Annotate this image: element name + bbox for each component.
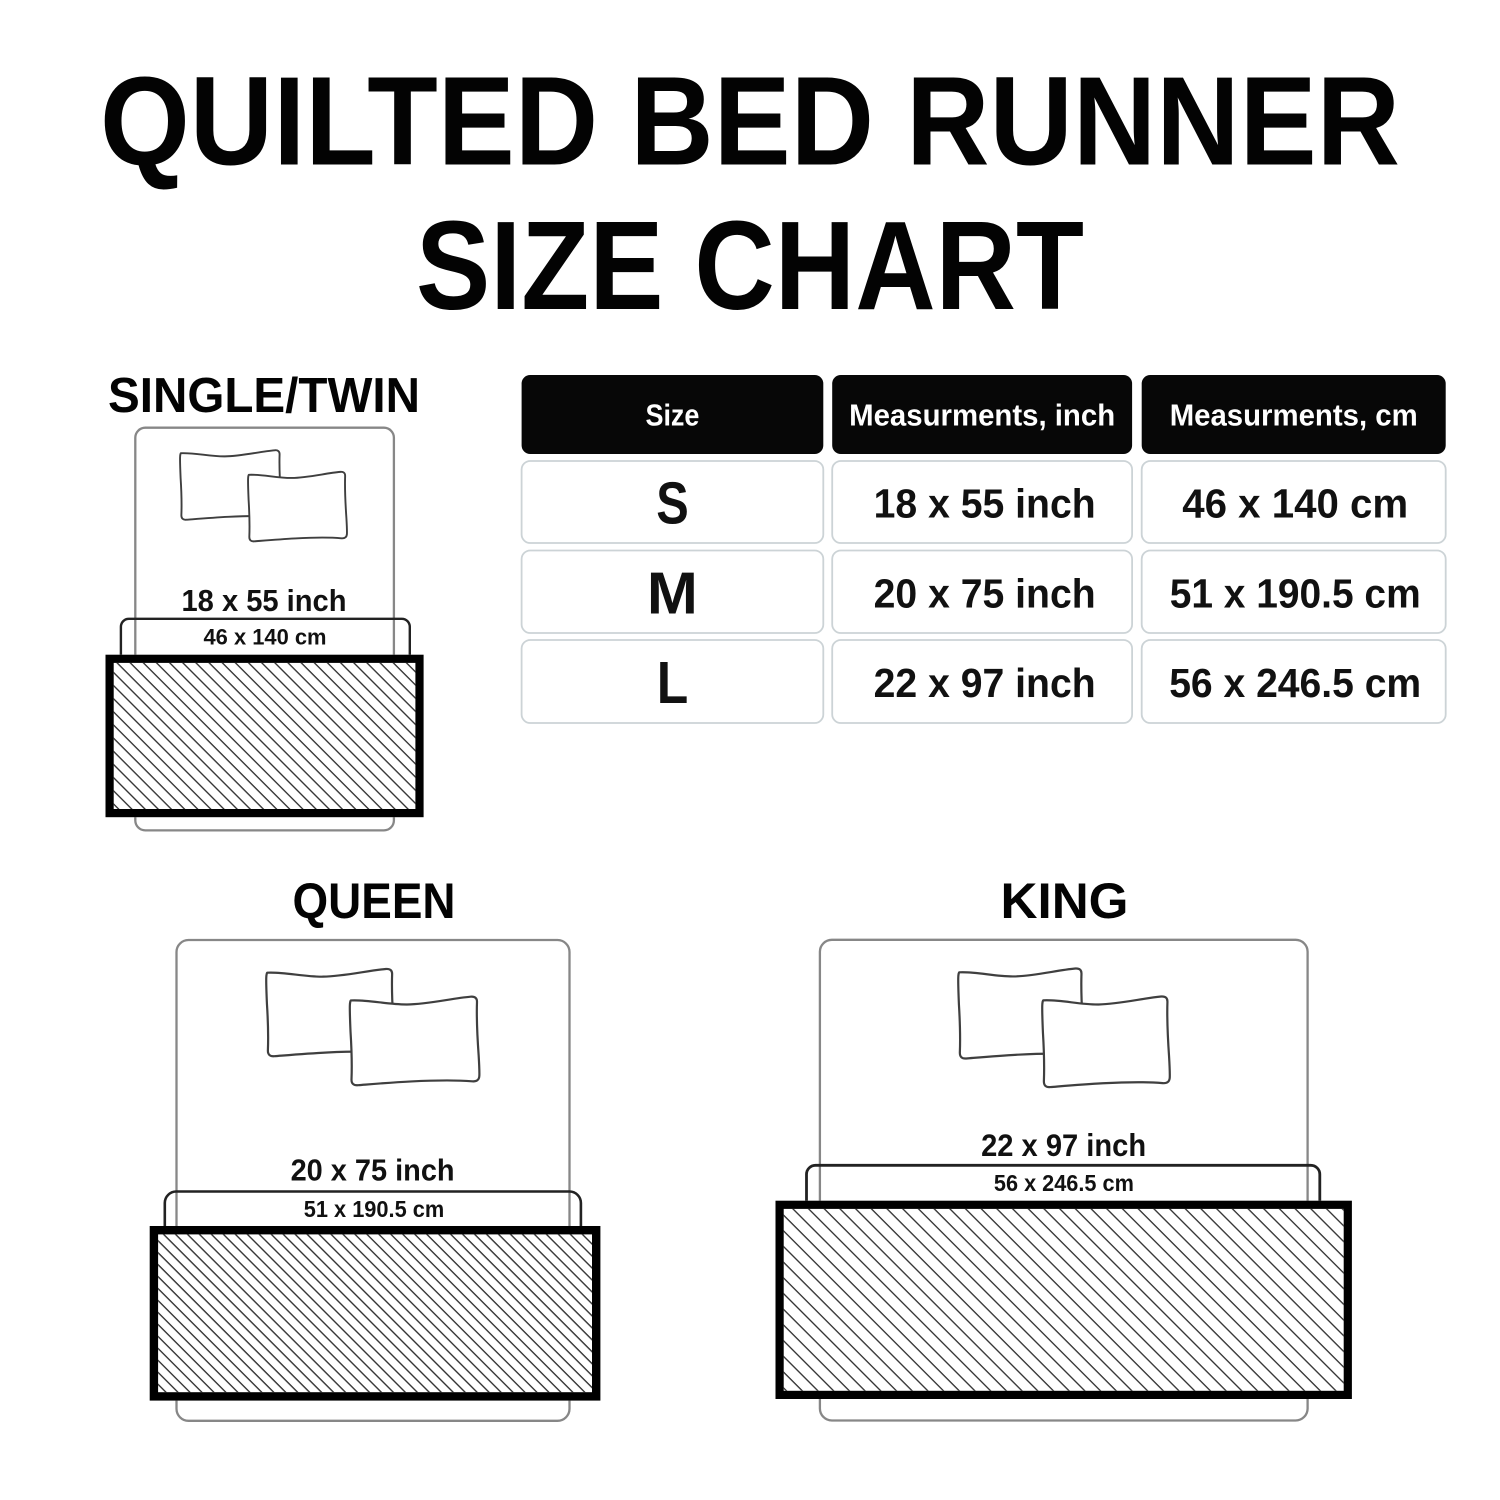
svg-text:51 x 190.5 cm: 51 x 190.5 cm xyxy=(304,1196,445,1222)
svg-text:20 x 75 inch: 20 x 75 inch xyxy=(874,570,1096,616)
svg-text:18 x 55 inch: 18 x 55 inch xyxy=(182,584,347,618)
svg-text:22 x 97 inch: 22 x 97 inch xyxy=(874,660,1096,706)
svg-text:Size: Size xyxy=(645,398,699,433)
svg-text:46 x 140 cm: 46 x 140 cm xyxy=(204,625,327,650)
svg-text:22 x 97 inch: 22 x 97 inch xyxy=(981,1127,1146,1163)
svg-text:46 x 140 cm: 46 x 140 cm xyxy=(1182,481,1408,527)
svg-text:18 x 55 inch: 18 x 55 inch xyxy=(874,481,1096,527)
svg-text:20 x 75 inch: 20 x 75 inch xyxy=(291,1153,455,1188)
svg-text:L: L xyxy=(657,649,689,716)
svg-text:51 x 190.5 cm: 51 x 190.5 cm xyxy=(1170,570,1421,616)
svg-text:QUILTED BED RUNNER: QUILTED BED RUNNER xyxy=(100,50,1400,192)
svg-text:Measurments, cm: Measurments, cm xyxy=(1170,398,1418,433)
svg-text:QUEEN: QUEEN xyxy=(293,873,456,929)
svg-text:SIZE CHART: SIZE CHART xyxy=(416,194,1084,336)
svg-text:Measurments, inch: Measurments, inch xyxy=(849,398,1115,433)
svg-text:56 x 246.5 cm: 56 x 246.5 cm xyxy=(994,1170,1134,1196)
svg-text:SINGLE/TWIN: SINGLE/TWIN xyxy=(108,368,420,423)
svg-text:M: M xyxy=(647,559,698,626)
svg-text:KING: KING xyxy=(1001,873,1129,929)
svg-text:S: S xyxy=(656,470,689,537)
svg-text:56 x 246.5 cm: 56 x 246.5 cm xyxy=(1169,660,1421,706)
